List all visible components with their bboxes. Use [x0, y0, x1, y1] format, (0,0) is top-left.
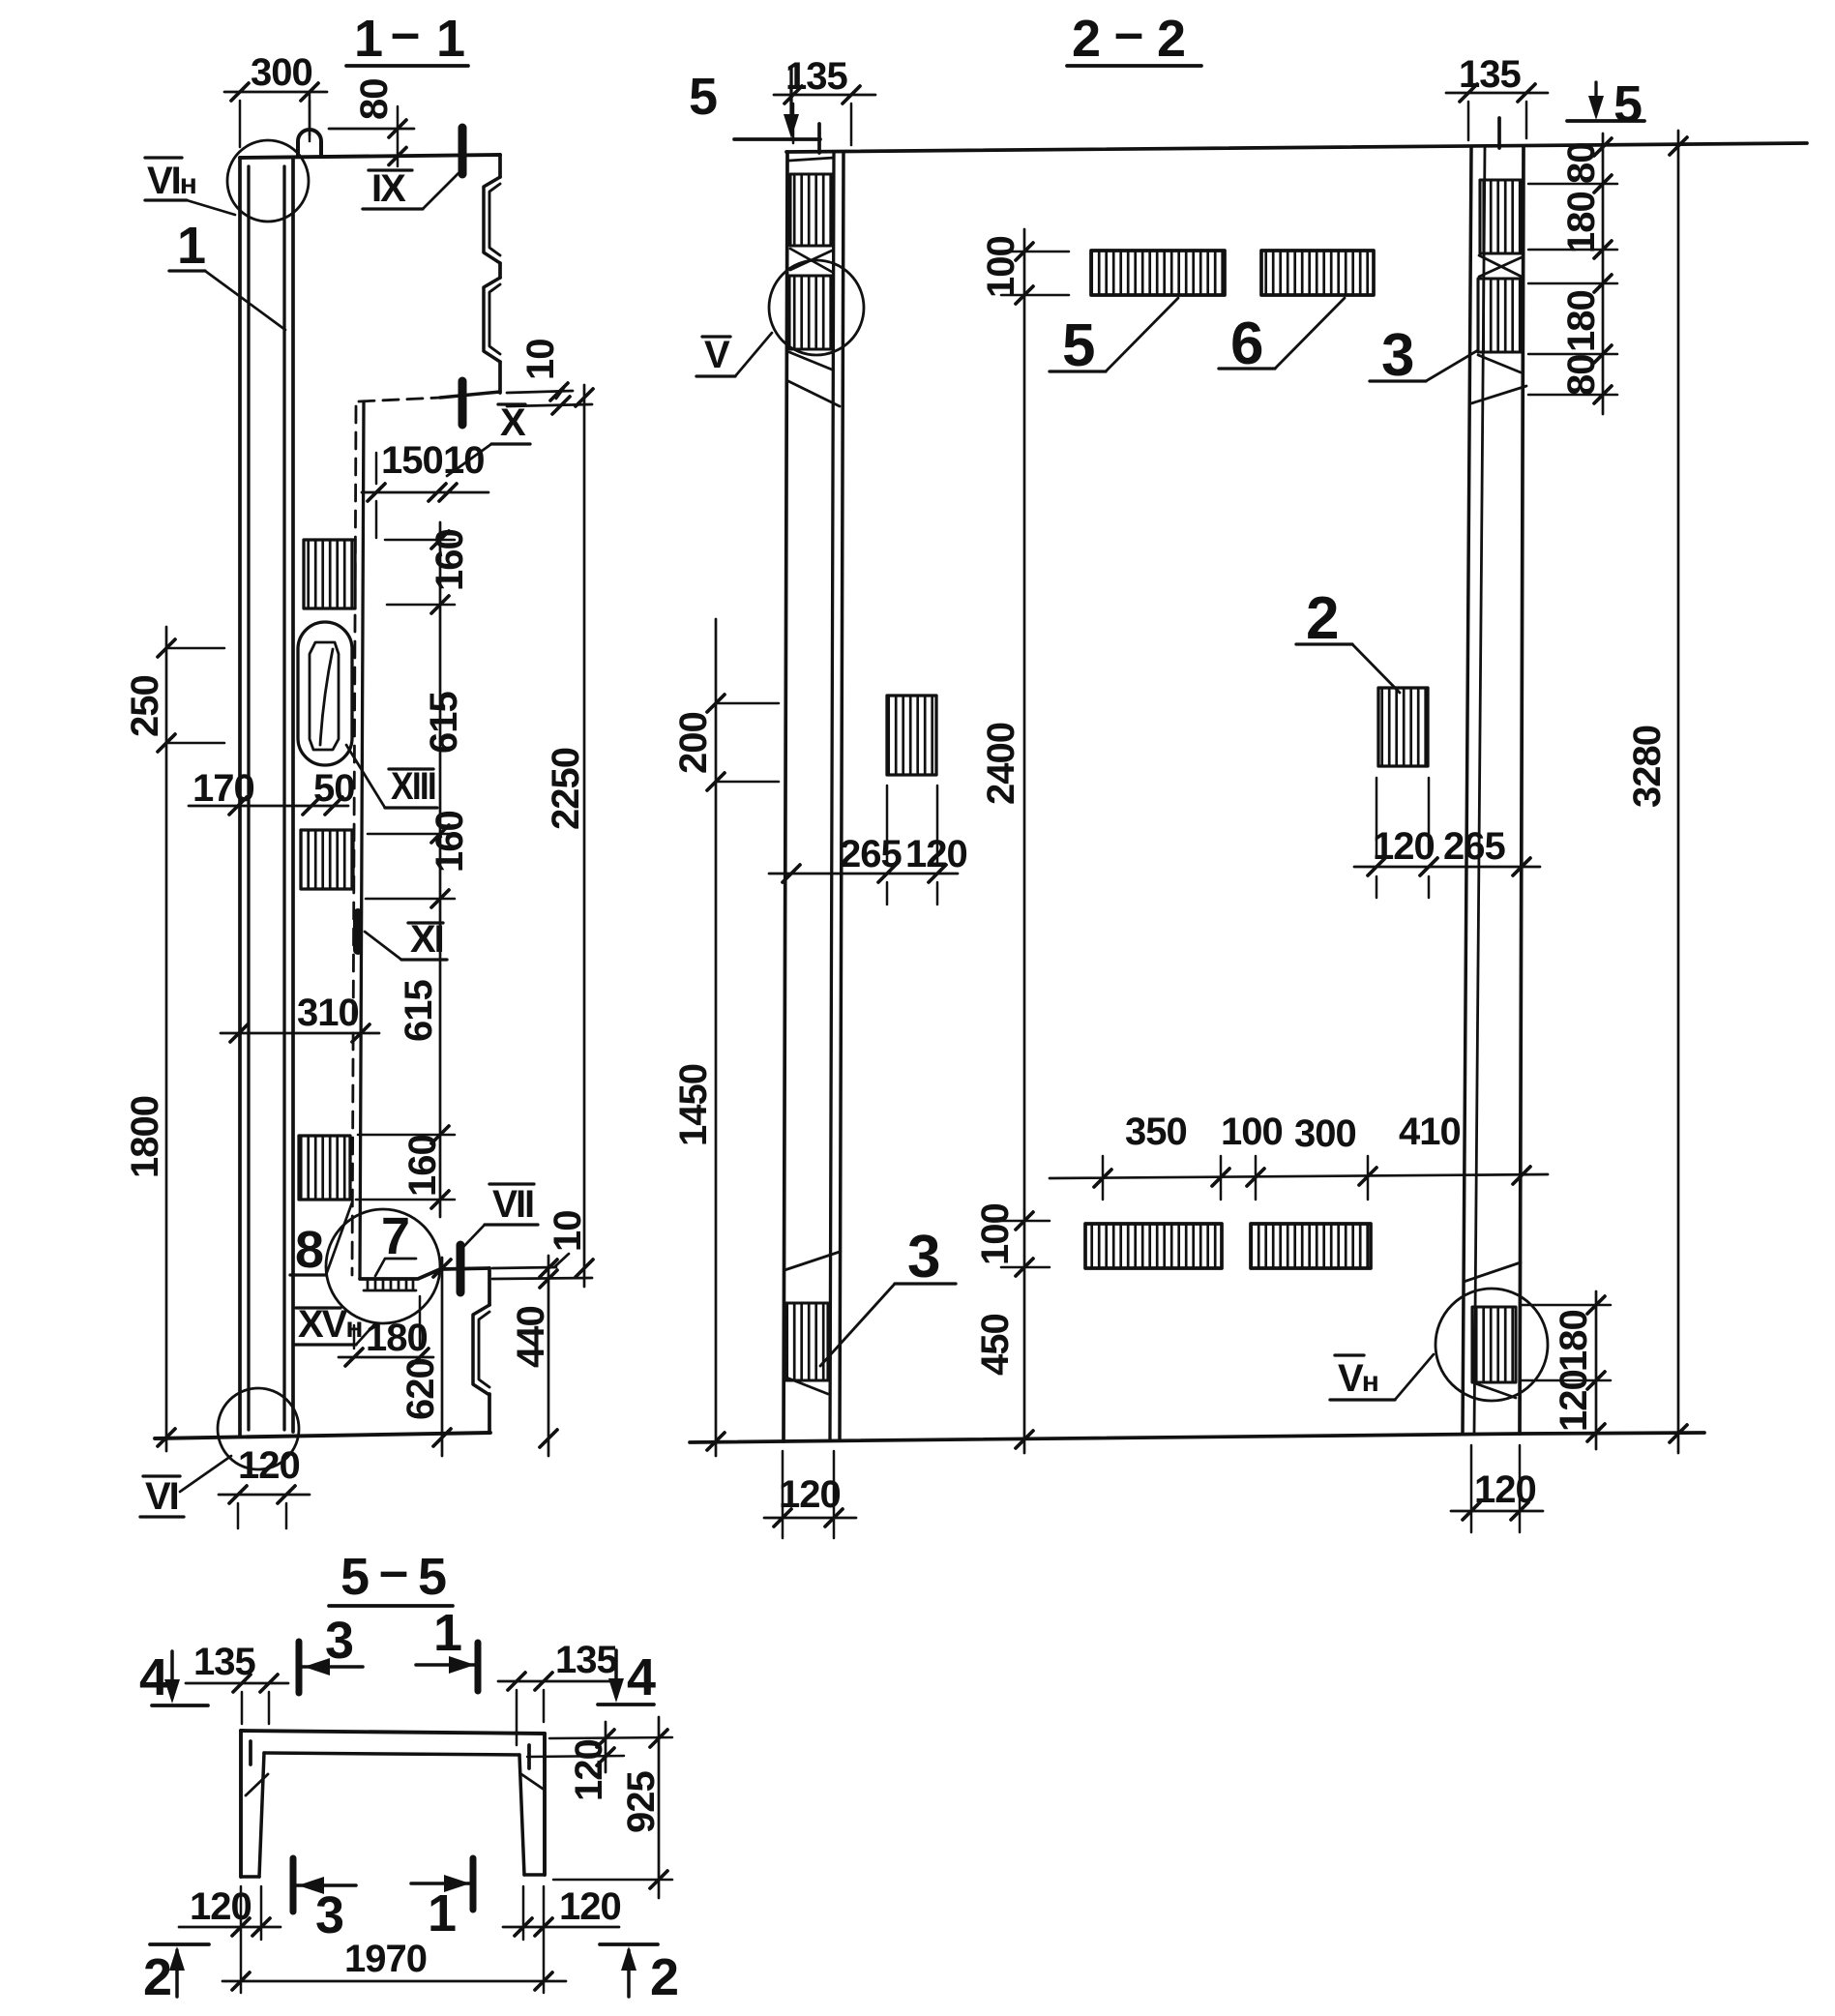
svg-text:120: 120 [568, 1739, 610, 1801]
svg-text:350: 350 [1125, 1111, 1187, 1153]
svg-text:100: 100 [1221, 1111, 1283, 1153]
svg-text:1970: 1970 [344, 1938, 427, 1980]
svg-text:160: 160 [401, 1135, 444, 1197]
svg-text:250: 250 [124, 675, 166, 737]
svg-text:4: 4 [139, 1648, 168, 1706]
svg-text:135: 135 [555, 1639, 617, 1681]
svg-text:1: 1 [436, 10, 465, 68]
svg-text:925: 925 [620, 1771, 663, 1833]
svg-text:7: 7 [381, 1207, 410, 1265]
svg-text:1: 1 [433, 1604, 462, 1662]
svg-text:2: 2 [650, 1948, 679, 2006]
svg-text:2: 2 [1157, 10, 1186, 68]
svg-text:80: 80 [353, 79, 396, 121]
svg-text:10: 10 [443, 439, 485, 482]
svg-text:10: 10 [547, 1211, 589, 1253]
svg-text:150: 150 [381, 439, 443, 482]
svg-text:160: 160 [429, 529, 471, 591]
svg-text:120: 120 [1553, 1370, 1595, 1432]
svg-text:300: 300 [1294, 1112, 1356, 1155]
svg-text:3: 3 [1381, 322, 1414, 389]
svg-text:1450: 1450 [672, 1064, 715, 1146]
svg-text:2250: 2250 [545, 748, 587, 830]
svg-text:200: 200 [672, 712, 715, 774]
svg-text:120: 120 [238, 1444, 300, 1487]
svg-text:440: 440 [510, 1306, 552, 1368]
svg-text:10: 10 [519, 340, 562, 381]
svg-text:170: 170 [192, 767, 254, 810]
svg-text:VI: VI [145, 1475, 178, 1518]
svg-text:–: – [1114, 4, 1143, 62]
svg-text:100: 100 [974, 1203, 1017, 1265]
svg-text:1800: 1800 [124, 1096, 166, 1178]
svg-text:1: 1 [354, 10, 383, 68]
svg-text:5: 5 [340, 1548, 370, 1606]
svg-text:410: 410 [1399, 1111, 1461, 1153]
svg-text:3: 3 [315, 1886, 344, 1944]
svg-text:1: 1 [177, 217, 206, 275]
svg-text:80: 80 [1560, 143, 1603, 185]
svg-text:4: 4 [627, 1648, 656, 1706]
svg-text:8: 8 [295, 1221, 324, 1279]
svg-text:620: 620 [400, 1358, 442, 1420]
svg-text:615: 615 [398, 980, 440, 1042]
svg-text:VII: VII [492, 1183, 533, 1226]
svg-text:5: 5 [689, 68, 718, 126]
svg-text:–: – [391, 4, 420, 62]
svg-text:180: 180 [366, 1317, 428, 1359]
svg-text:3: 3 [907, 1224, 940, 1290]
svg-text:120: 120 [779, 1473, 841, 1516]
svg-text:2: 2 [143, 1948, 172, 2006]
svg-text:180: 180 [1560, 192, 1603, 253]
svg-text:80: 80 [1560, 355, 1603, 397]
svg-text:1: 1 [428, 1884, 457, 1942]
svg-text:2400: 2400 [980, 723, 1022, 805]
svg-text:2: 2 [1072, 10, 1101, 68]
svg-text:135: 135 [1459, 53, 1521, 96]
svg-text:IX: IX [371, 167, 406, 210]
svg-text:160: 160 [429, 811, 471, 873]
svg-text:3280: 3280 [1626, 726, 1669, 808]
svg-text:120: 120 [559, 1885, 621, 1928]
svg-text:310: 310 [297, 992, 359, 1034]
svg-text:180: 180 [1553, 1310, 1595, 1372]
svg-text:X: X [500, 401, 526, 444]
svg-text:450: 450 [974, 1314, 1017, 1376]
svg-text:V: V [704, 334, 730, 376]
svg-text:5: 5 [1062, 312, 1095, 379]
svg-text:2: 2 [1306, 585, 1339, 652]
svg-text:5: 5 [1613, 75, 1643, 133]
svg-text:XIII: XIII [391, 765, 435, 808]
svg-text:–: – [379, 1542, 408, 1600]
svg-text:100: 100 [980, 236, 1022, 298]
svg-text:300: 300 [251, 51, 312, 94]
svg-text:265: 265 [1443, 825, 1505, 868]
svg-text:180: 180 [1560, 290, 1603, 352]
svg-text:5: 5 [418, 1548, 447, 1606]
svg-text:615: 615 [423, 692, 465, 754]
